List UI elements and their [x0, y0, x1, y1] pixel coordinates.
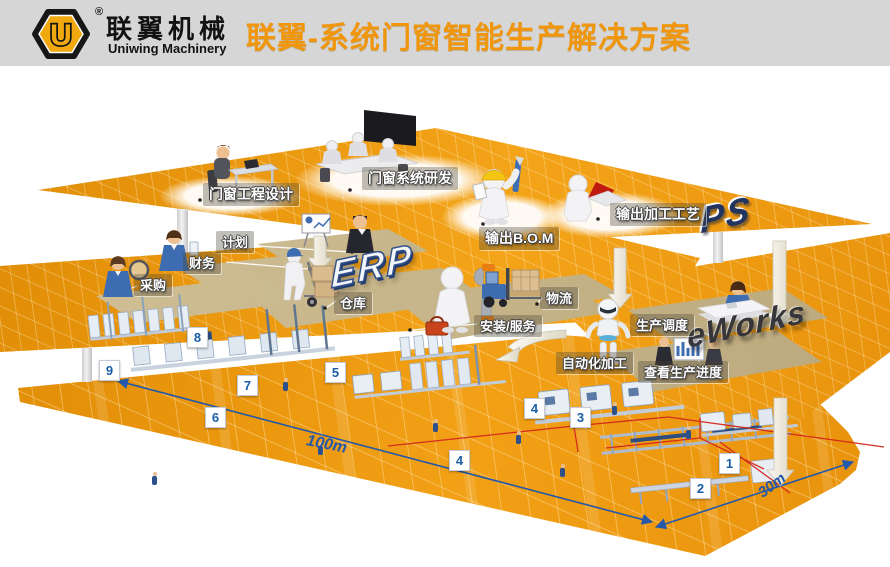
forklift-figure: [476, 266, 548, 320]
floor-worker-figure: [433, 419, 438, 432]
floor-worker-figure: [516, 431, 521, 444]
floor-marker-4a: 4: [524, 398, 545, 419]
station-label-finance: 财务: [183, 252, 221, 274]
registered-trademark: ®: [95, 6, 103, 18]
station-label-design: 门窗工程设计: [203, 183, 299, 206]
floor-marker-4b: 4: [449, 450, 470, 471]
page-title: 联翼-系统门窗智能生产解决方案: [246, 13, 691, 57]
infographic-canvas: U ® 联翼机械 Uniwing Machinery 联翼-系统门窗智能生产解决…: [0, 0, 890, 567]
station-label-plan: 计划: [216, 231, 254, 253]
floor-marker-2: 2: [690, 478, 711, 499]
floor-worker-figure: [612, 402, 617, 415]
station-label-rnd: 门窗系统研发: [362, 167, 458, 190]
floor-worker-figure: [560, 464, 565, 477]
floor-marker-1: 1: [719, 453, 740, 474]
header-bar: U ® 联翼机械 Uniwing Machinery 联翼-系统门窗智能生产解决…: [0, 0, 890, 66]
floor-marker-7: 7: [237, 375, 258, 396]
station-label-purchase: 采购: [134, 274, 172, 296]
brand-name-en: Uniwing Machinery: [108, 41, 226, 56]
station-label-bom: 输出B.O.M: [479, 227, 559, 250]
support-pillar: [82, 348, 92, 382]
floor-marker-9: 9: [99, 360, 120, 381]
floor-marker-5: 5: [325, 362, 346, 383]
station-label-logistics: 物流: [540, 287, 578, 309]
station-label-dispatch: 生产调度: [630, 314, 694, 336]
station-label-progress: 查看生产进度: [638, 361, 728, 383]
station-label-craft: 输出加工工艺: [610, 203, 706, 226]
floor-marker-6: 6: [205, 407, 226, 428]
floor-marker-3: 3: [570, 407, 591, 428]
floor-marker-8: 8: [187, 327, 208, 348]
station-label-install: 安装/服务: [474, 315, 542, 337]
floor-worker-figure: [283, 378, 288, 391]
floor-worker-figure: [686, 426, 691, 439]
uniwing-logo-icon: U: [30, 5, 96, 63]
station-label-warehouse: 仓库: [334, 292, 372, 314]
station-label-auto: 自动化加工: [556, 352, 633, 374]
floor-worker-figure: [152, 472, 157, 485]
logo-letter: U: [50, 19, 72, 52]
